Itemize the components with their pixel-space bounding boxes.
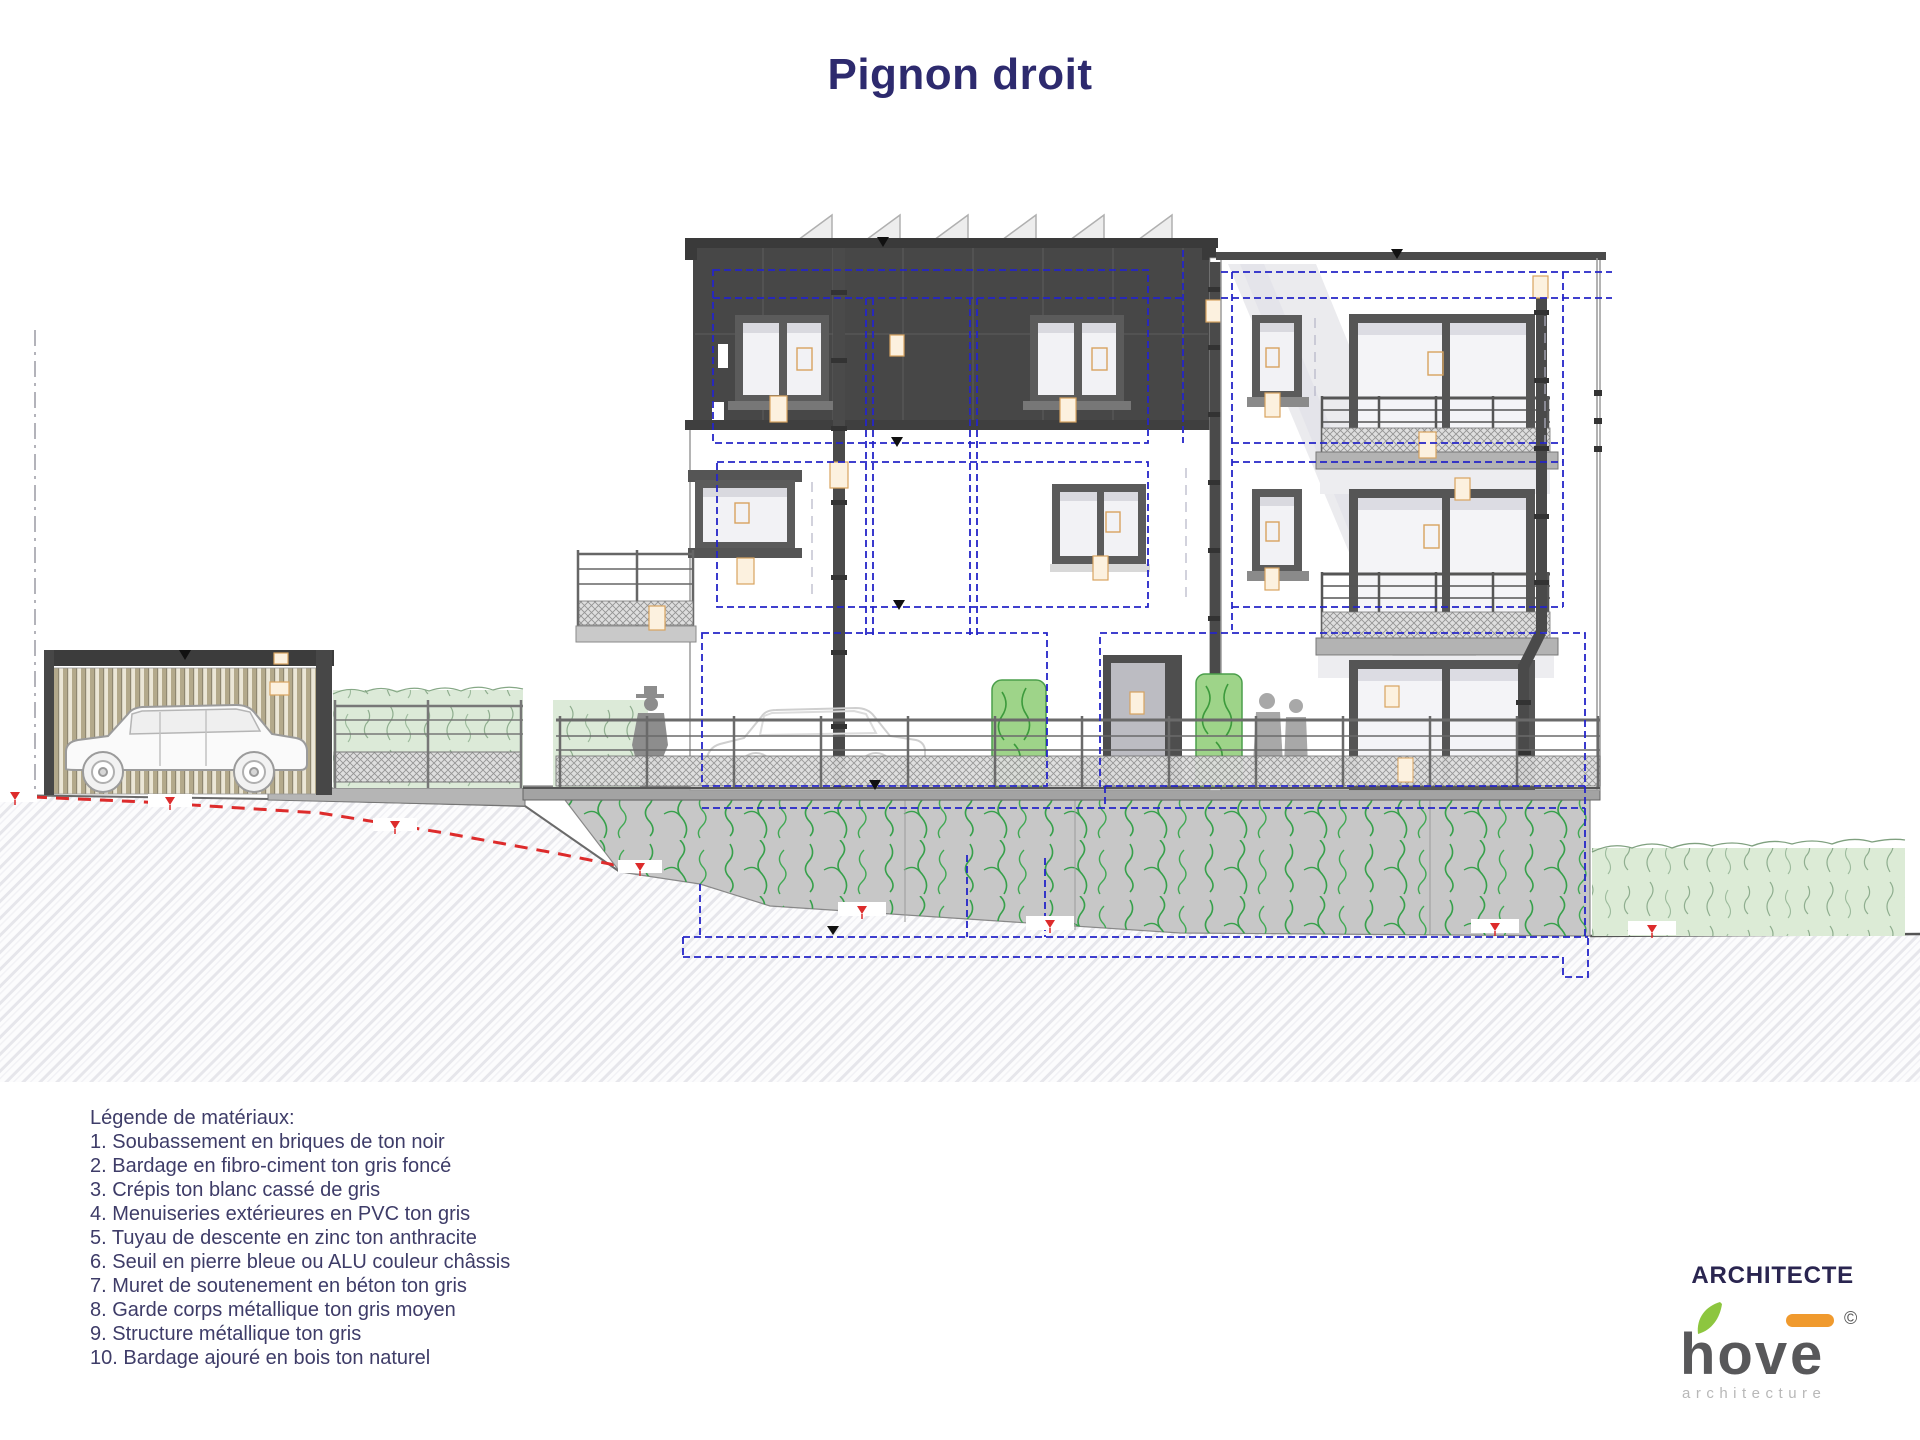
building-right-block <box>1216 252 1606 790</box>
legend-item: 2. Bardage en fibro-ciment ton gris fonc… <box>90 1154 510 1178</box>
window-narrow-upper <box>1247 315 1309 417</box>
logo-name-head: hov <box>1680 1322 1789 1387</box>
architect-logo: hov e © architecture <box>1678 1298 1878 1413</box>
legend-item: 6. Seuil en pierre bleue ou ALU couleur … <box>90 1250 510 1274</box>
floor-slab-edge <box>685 420 1218 430</box>
legend-item: 7. Muret de soutenement en béton ton gri… <box>90 1274 510 1298</box>
window-narrow-middle <box>1247 489 1309 590</box>
legend-item: 5. Tuyau de descente en zinc ton anthrac… <box>90 1226 510 1250</box>
window-upper-right <box>1023 315 1131 422</box>
logo-name-tail: e <box>1790 1322 1822 1387</box>
window-middle-right <box>1050 484 1150 580</box>
legend-item: 4. Menuiseries extérieures en PVC ton gr… <box>90 1202 510 1226</box>
hove-logo: hov e © architecture <box>1678 1298 1878 1408</box>
roof-edge <box>685 238 1218 248</box>
logo-subtitle: architecture <box>1682 1385 1826 1402</box>
balcony-left <box>576 550 696 642</box>
legend-item: 8. Garde corps métallique ton gris moyen <box>90 1298 510 1322</box>
logo-macron-bar <box>1786 1314 1834 1327</box>
carport <box>44 650 334 795</box>
legend-heading: Légende de matériaux: <box>90 1106 510 1130</box>
legend-item: 3. Crépis ton blanc cassé de gris <box>90 1178 510 1202</box>
window-upper-left <box>728 315 836 422</box>
legend-item: 10. Bardage ajouré en bois ton naturel <box>90 1346 510 1370</box>
architect-label: ARCHITECTE <box>1664 1262 1854 1290</box>
building-main-block <box>576 215 1218 790</box>
roof-brackets <box>798 215 1172 240</box>
legend-item: 9. Structure métallique ton gris <box>90 1322 510 1346</box>
page: Pignon droit <box>0 0 1920 1440</box>
legend-item: 1. Soubassement en briques de ton noir <box>90 1130 510 1154</box>
logo-copyright: © <box>1844 1308 1857 1328</box>
materials-legend: Légende de matériaux: 1. Soubassement en… <box>90 1106 510 1370</box>
parapet-edge <box>1216 252 1606 260</box>
